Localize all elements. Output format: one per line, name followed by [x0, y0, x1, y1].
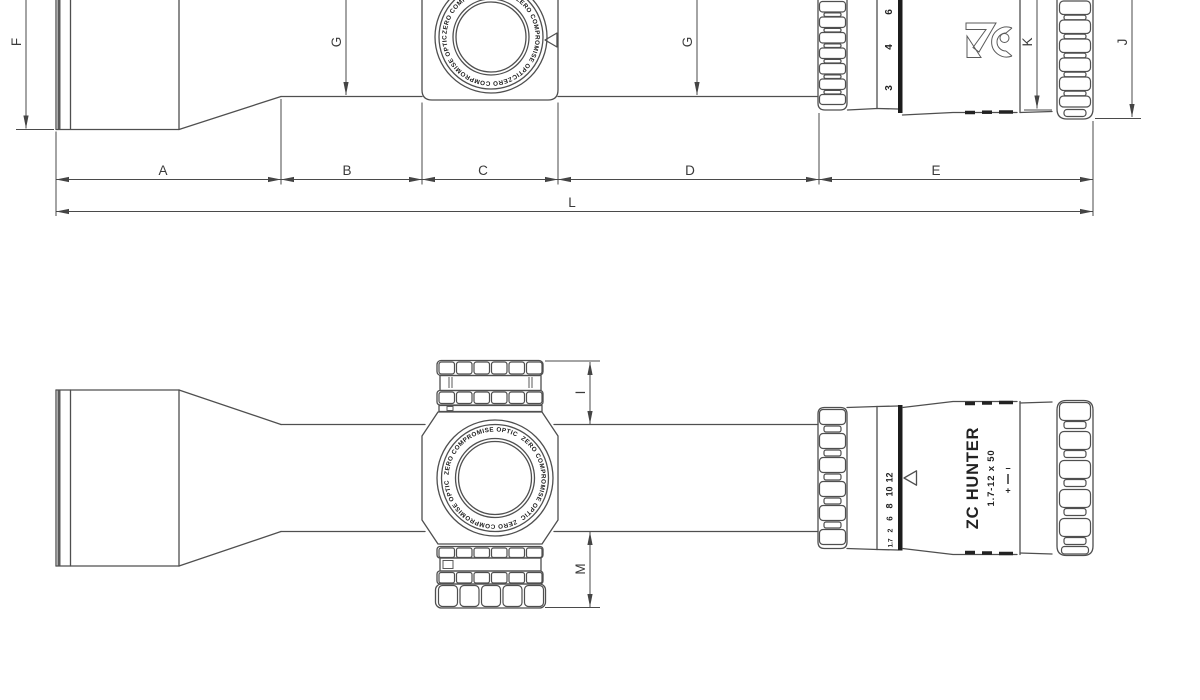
- mag-number: 4: [884, 44, 895, 50]
- mag-number: 10: [885, 486, 895, 496]
- model-name-text: ZC HUNTER: [964, 427, 982, 530]
- mag-number: 6: [884, 9, 895, 15]
- parallax-turret-plan: [436, 547, 546, 609]
- power-ring-plan: [818, 408, 847, 549]
- diopter-plus: +: [1005, 486, 1010, 496]
- power-ring-side: [818, 0, 847, 110]
- magnification-scale-plan: 12 10 8 6 2 1.7: [847, 405, 917, 551]
- magnification-scale-side: 6 4 3: [848, 0, 903, 113]
- objective-bell-side: [56, 0, 281, 130]
- main-tube-plan: [281, 425, 818, 532]
- mag-number: 2: [888, 528, 895, 532]
- ocular-housing-side: [903, 0, 1053, 115]
- riflescope-technical-drawing: ZERO COMPROMISE OPTIC ZERO COMPROMISE OP…: [0, 0, 1200, 700]
- dim-label-e: E: [931, 163, 940, 178]
- windage-turret-plan: [437, 361, 543, 412]
- mag-number: 12: [885, 472, 895, 482]
- dim-label-b: B: [342, 163, 351, 178]
- side-view: ZERO COMPROMISE OPTIC ZERO COMPROMISE OP…: [56, 0, 1093, 130]
- diopter-plus-minus-icon: − +: [1005, 464, 1010, 496]
- diopter-ring-plan: [1057, 401, 1093, 556]
- diopter-minus: −: [1005, 464, 1010, 474]
- turret-cap-text: ZERO COMPROMISE OPTIC: [443, 480, 517, 530]
- mag-number: 1.7: [888, 538, 895, 547]
- diopter-ring-side: [1057, 0, 1093, 119]
- dim-label-f: F: [9, 38, 24, 46]
- dim-label-c: C: [478, 163, 488, 178]
- objective-bell-plan: [56, 390, 281, 566]
- index-triangle-icon: [904, 471, 917, 485]
- dim-label-i: I: [573, 391, 588, 395]
- dim-label-k: K: [1020, 37, 1035, 46]
- ocular-housing-plan: ZC HUNTER 1.7-12 x 50 − +: [903, 402, 1053, 555]
- dim-label-g1: G: [329, 37, 344, 48]
- mag-number: 6: [886, 516, 895, 521]
- turret-housing-side: ZERO COMPROMISE OPTIC ZERO COMPROMISE OP…: [422, 0, 558, 100]
- turret-cap-text: ZERO COMPROMISE OPTIC: [444, 426, 519, 475]
- turret-cap-text: ZERO COMPROMISE OPTIC: [441, 35, 512, 87]
- dim-label-m: M: [573, 563, 588, 574]
- technical-drawing-page: ZERO COMPROMISE OPTIC ZERO COMPROMISE OP…: [0, 0, 1200, 700]
- dim-label-g2: G: [680, 37, 695, 48]
- turret-housing-plan: ZERO COMPROMISE OPTIC ZERO COMPROMISE OP…: [422, 412, 558, 544]
- zco-logo: [966, 23, 1012, 58]
- mag-number: 3: [884, 85, 895, 91]
- dim-label-j: J: [1115, 39, 1130, 46]
- spec-text: 1.7-12 x 50: [986, 450, 997, 507]
- turret-cap-text: ZERO COMPROMISE OPTIC: [519, 435, 547, 521]
- dim-label-l: L: [568, 195, 576, 210]
- dim-label-d: D: [685, 163, 695, 178]
- dim-label-a: A: [158, 163, 167, 178]
- mag-number: 8: [885, 503, 895, 508]
